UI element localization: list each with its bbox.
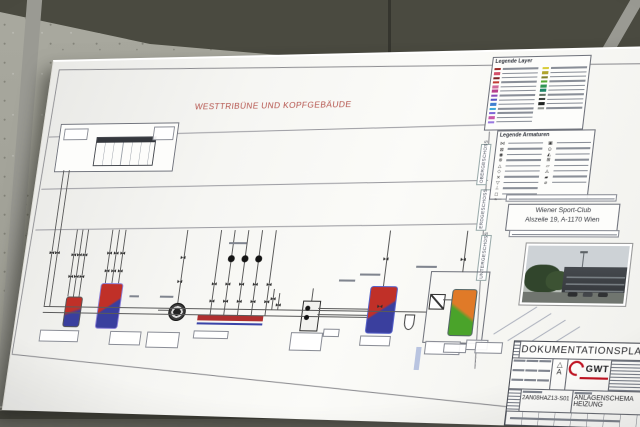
triangle-icon: △ (554, 360, 567, 369)
pipe-line (443, 299, 451, 300)
title-block: DOKUMENTATIONSPLAN △ A GWT (504, 340, 640, 427)
manifold-return-bar (197, 322, 263, 326)
schematic-micro-label (129, 295, 139, 297)
pump-dot-icon (227, 255, 235, 262)
heat-exchanger (428, 294, 446, 310)
pipe-line (177, 230, 188, 303)
pipe-line (462, 231, 468, 273)
plan-number-cell: 2AN08HAZ13-S01 (519, 390, 573, 413)
pipe-line (67, 230, 78, 297)
schematic-label (359, 335, 391, 346)
plan-subject: HEIZUNG (573, 402, 640, 410)
title-block-title: DOKUMENTATIONSPLAN (519, 342, 640, 361)
schematic-label (323, 329, 340, 338)
plan-number: 2AN08HAZ13-S01 (522, 395, 571, 403)
pipe-line (118, 230, 126, 283)
schematic-label (289, 332, 323, 351)
gwt-logo-icon (566, 358, 587, 379)
pipe-line (264, 230, 276, 316)
schematic-micro-label (416, 266, 437, 268)
pipe-line (251, 230, 264, 316)
company-logo-cell: GWT (565, 360, 612, 391)
pipe-line (311, 288, 314, 300)
revision-table (509, 358, 553, 389)
pipe-line (277, 293, 280, 309)
schematic-label (145, 332, 180, 349)
pump-dot-icon (241, 255, 249, 262)
gwt-logo-text: GWT (585, 363, 610, 374)
schematic-label (443, 343, 467, 353)
logo-tagline-bar (580, 377, 609, 379)
schematic-micro-label (229, 242, 247, 244)
schematic-micro-label (160, 296, 174, 298)
schematic-micro-label (360, 273, 381, 275)
pipe-line (158, 310, 169, 311)
expansion-vessel (403, 314, 415, 330)
plan-name-cell: ANLAGENSCHEMA HEIZUNG (571, 391, 640, 415)
pump-dot-icon (255, 255, 263, 262)
scale-strip (505, 412, 640, 427)
schematic-label (39, 330, 80, 343)
schematic-label (474, 342, 503, 354)
pipe-line (44, 170, 65, 306)
photographed-plan-scene: OBERGESCHOSS ERDGESCHOSS UNTERGESCHOSS W… (0, 0, 640, 427)
plan-board: OBERGESCHOSS ERDGESCHOSS UNTERGESCHOSS W… (2, 45, 640, 427)
company-address-block (609, 360, 640, 391)
schematic-micro-label (339, 279, 355, 281)
pipe-line (393, 311, 426, 313)
pump-icon (167, 303, 187, 321)
revision-letter: A (553, 369, 566, 377)
pipe-line (209, 230, 222, 315)
schematic-label (193, 330, 229, 339)
schematic-label (108, 331, 141, 346)
